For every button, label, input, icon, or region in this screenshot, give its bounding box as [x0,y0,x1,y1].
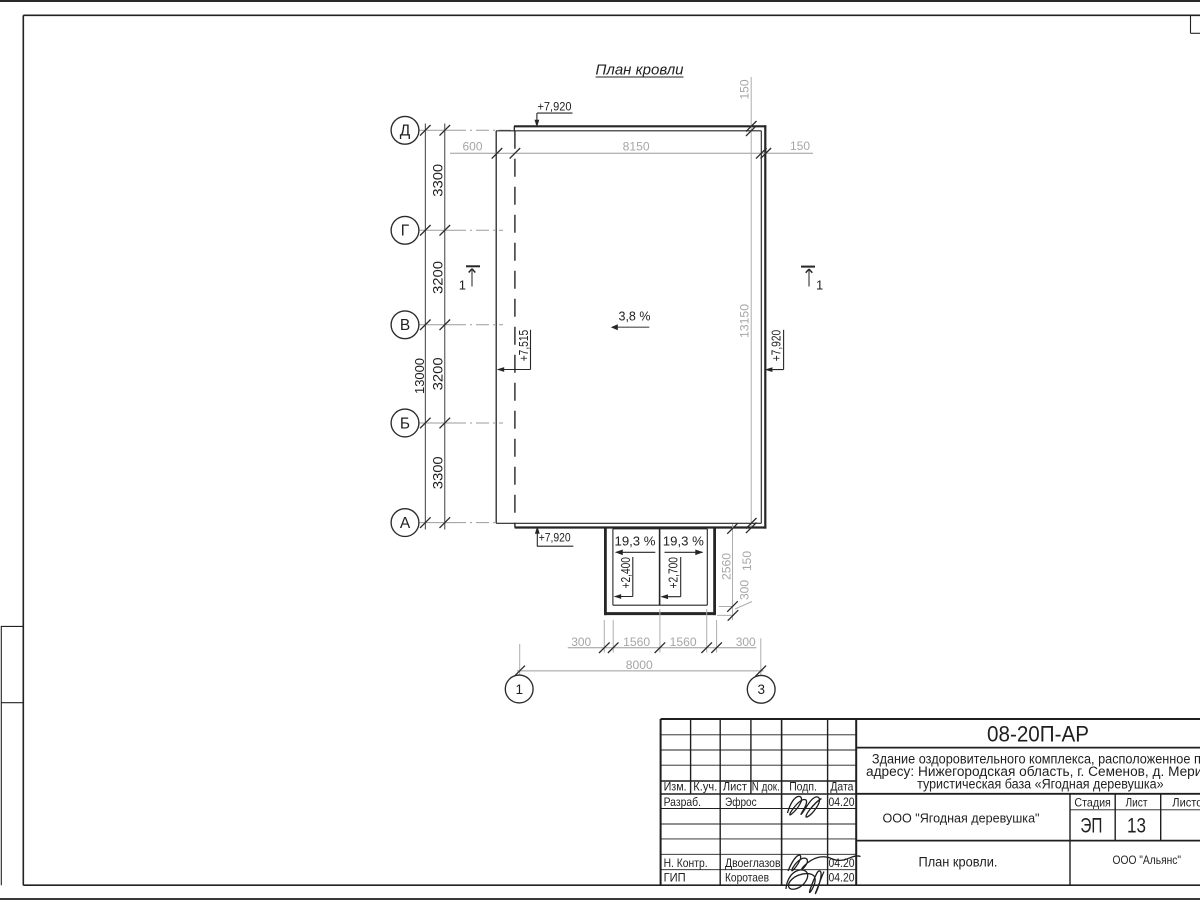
svg-text:В: В [400,317,410,334]
svg-text:+7,920: +7,920 [769,330,783,362]
svg-text:1: 1 [459,277,466,292]
svg-text:04.20: 04.20 [829,795,855,809]
svg-text:300: 300 [736,635,756,649]
svg-text:Эфрос: Эфрос [725,795,757,809]
svg-text:ГИП: ГИП [664,870,686,884]
svg-text:ООО "Альянс": ООО "Альянс" [1113,855,1182,867]
svg-text:туристическая база «Ягодная де: туристическая база «Ягодная деревушка» [917,776,1164,791]
svg-text:+7,920: +7,920 [538,100,572,114]
svg-text:3: 3 [757,682,765,697]
svg-text:+7,920: +7,920 [539,531,571,545]
svg-text:Разраб.: Разраб. [664,795,701,809]
svg-text:150: 150 [740,551,754,571]
svg-text:3300: 3300 [429,164,445,197]
svg-text:ЭП: ЭП [1080,815,1102,838]
svg-text:План кровли: План кровли [596,62,684,78]
svg-text:Коротаев: Коротаев [725,870,769,884]
svg-text:1: 1 [515,682,523,697]
svg-text:1: 1 [816,277,823,292]
svg-text:1560: 1560 [623,635,650,649]
svg-text:К.уч.: К.уч. [693,780,717,794]
svg-text:Д: Д [400,123,411,140]
svg-text:ООО "Ягодная деревушка": ООО "Ягодная деревушка" [883,811,1040,826]
svg-text:19,3 %: 19,3 % [615,533,656,548]
svg-text:3200: 3200 [429,261,445,294]
svg-text:Изм.: Изм. [664,780,687,794]
svg-text:Лист: Лист [1126,795,1148,809]
svg-text:+7,515: +7,515 [517,330,531,362]
svg-text:150: 150 [738,79,752,99]
svg-text:Дата: Дата [830,780,853,794]
svg-text:13000: 13000 [412,358,427,394]
svg-text:Листов: Листов [1172,795,1200,809]
svg-text:Лист: Лист [723,780,747,794]
svg-text:+2,400: +2,400 [619,557,633,589]
svg-text:300: 300 [571,635,591,649]
svg-text:2560: 2560 [719,553,733,580]
svg-text:3200: 3200 [429,357,445,390]
svg-text:А: А [400,515,411,532]
svg-text:04.20: 04.20 [829,870,855,884]
svg-text:Б: Б [400,415,410,432]
svg-text:3300: 3300 [429,456,445,489]
svg-text:150: 150 [790,139,810,153]
svg-text:8000: 8000 [626,658,653,672]
svg-text:Стадия: Стадия [1074,795,1111,809]
svg-text:13: 13 [1127,815,1146,838]
svg-text:1560: 1560 [670,635,697,649]
svg-text:План кровли.: План кровли. [919,853,998,869]
svg-text:+2,700: +2,700 [667,557,681,589]
svg-text:Н. Контр.: Н. Контр. [664,856,708,870]
svg-text:Г: Г [401,223,410,240]
svg-text:N док.: N док. [752,780,780,794]
svg-text:3,8 %: 3,8 % [619,309,651,324]
svg-text:300: 300 [738,580,752,600]
svg-text:08-20П-АР: 08-20П-АР [987,722,1089,747]
svg-text:8150: 8150 [623,140,650,154]
svg-text:19,3 %: 19,3 % [663,533,704,548]
svg-text:13150: 13150 [738,304,752,338]
svg-text:Двоеглазов: Двоеглазов [725,856,781,870]
svg-text:600: 600 [463,140,483,154]
svg-text:Подп.: Подп. [789,780,817,794]
